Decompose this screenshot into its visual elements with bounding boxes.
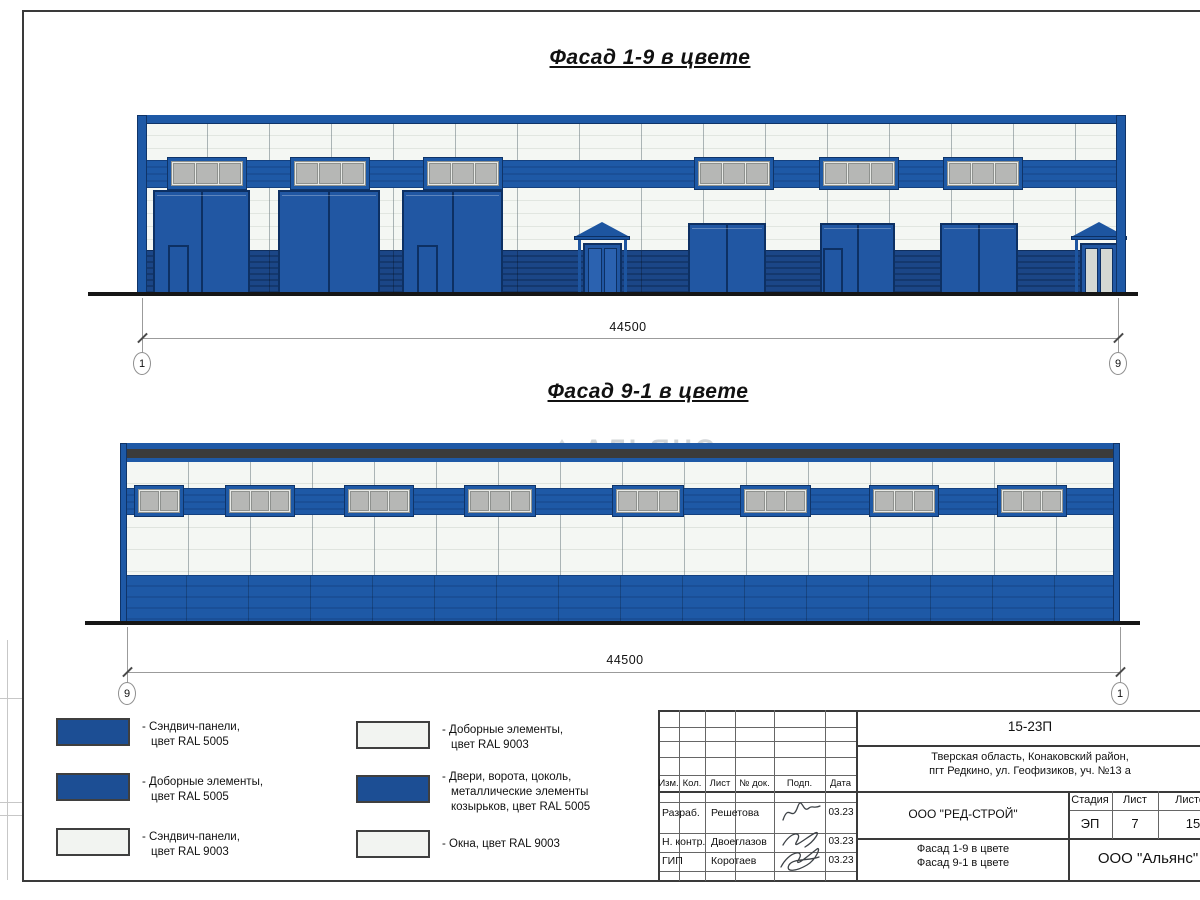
project-address-line1: Тверская область, Конаковский район, xyxy=(856,751,1200,763)
window xyxy=(612,485,684,517)
titleblock-line xyxy=(856,745,1200,747)
legend-swatch-white xyxy=(56,828,130,856)
stage-value: ЭП xyxy=(1068,816,1112,831)
col-header-list: Лист xyxy=(705,778,735,789)
canopy-post xyxy=(578,240,581,293)
dimension-value: 44500 xyxy=(609,320,646,334)
window xyxy=(134,485,184,517)
legend-swatch-blue xyxy=(56,718,130,746)
titleblock-line xyxy=(658,871,856,872)
legend-label: - Доборные элементы, цвет RAL 5005 xyxy=(142,775,263,805)
extension-line xyxy=(1118,298,1119,354)
entrance-door xyxy=(583,243,622,293)
sheet-title-line2: Фасад 9-1 в цвете xyxy=(858,857,1068,869)
titleblock-line xyxy=(658,833,856,834)
window xyxy=(943,157,1023,190)
frame-bottom-line xyxy=(22,880,1200,882)
titleblock-line xyxy=(658,710,660,881)
legend-label: - Двери, ворота, цоколь, металлические э… xyxy=(442,770,590,815)
titleblock-line xyxy=(658,710,1200,712)
legend-label: - Сэндвич-панели, цвет RAL 5005 xyxy=(142,720,240,750)
titleblock-line xyxy=(705,710,706,881)
project-address-line2: пгт Редкино, ул. Геофизиков, уч. №13 а xyxy=(856,765,1200,777)
dimension-line xyxy=(142,338,1118,339)
titleblock-line xyxy=(658,852,856,853)
extension-line xyxy=(127,627,128,683)
legend-text: - Доборные элементы, xyxy=(142,776,263,788)
sheets-total: 15 xyxy=(1158,816,1200,831)
window xyxy=(167,157,247,190)
facade-1-9-drawing xyxy=(137,115,1126,293)
blue-bottom-band xyxy=(125,575,1115,623)
entrance-door-glazed xyxy=(1080,243,1118,293)
role-gip: ГИП xyxy=(662,855,683,867)
door-wicket xyxy=(823,248,843,293)
margin-line xyxy=(0,802,22,803)
name-nkontr: Двоеглазов xyxy=(711,836,767,848)
roof-dark-band xyxy=(125,449,1115,458)
blue-trim-line xyxy=(125,458,1115,462)
legend-text: цвет RAL 9003 xyxy=(442,738,563,753)
facade-top-edge xyxy=(137,115,1126,124)
door xyxy=(688,223,766,293)
titleblock-line xyxy=(1068,810,1200,811)
sandwich-panel-wall xyxy=(127,462,1113,575)
developer-company: ООО "РЕД-СТРОЙ" xyxy=(858,807,1068,821)
legend-text: цвет RAL 9003 xyxy=(142,845,240,860)
sheet-label: Лист xyxy=(1112,794,1158,806)
frame-left-line xyxy=(22,10,24,882)
titleblock-line xyxy=(658,775,856,776)
window xyxy=(819,157,899,190)
window xyxy=(740,485,811,517)
signature xyxy=(778,796,822,828)
ground-line xyxy=(88,292,1138,296)
corner-pilaster xyxy=(137,115,147,293)
doc-number: 15-23П xyxy=(856,719,1200,734)
legend-text: - Двери, ворота, цоколь, xyxy=(442,771,571,783)
facade-9-1-title: Фасад 9-1 в цвете xyxy=(548,380,749,404)
window xyxy=(997,485,1067,517)
window xyxy=(344,485,414,517)
legend-text: козырьков, цвет RAL 5005 xyxy=(442,800,590,815)
window xyxy=(423,157,503,190)
window xyxy=(464,485,536,517)
gate-wicket-door xyxy=(417,245,438,293)
margin-line xyxy=(0,815,22,816)
sheet-number: 7 xyxy=(1112,816,1158,831)
titleblock-line xyxy=(658,757,856,758)
date-nkontr: 03.23 xyxy=(826,836,856,847)
window xyxy=(225,485,295,517)
legend-text: цвет RAL 5005 xyxy=(142,790,263,805)
date-gip: 03.23 xyxy=(826,855,856,866)
legend-swatch-white xyxy=(356,721,430,749)
ground-line xyxy=(85,621,1140,625)
col-header-data: Дата xyxy=(825,778,856,789)
dimension-line xyxy=(127,672,1120,673)
corner-pilaster xyxy=(1116,115,1126,293)
design-company: ООО "Альянс" xyxy=(1068,850,1200,867)
col-header-kol: Кол. xyxy=(679,778,705,789)
legend-label: - Сэндвич-панели, цвет RAL 9003 xyxy=(142,830,240,860)
corner-pilaster xyxy=(120,443,127,623)
role-razrab: Разраб. xyxy=(662,807,700,819)
legend-text: - Доборные элементы, xyxy=(442,724,563,736)
entrance-canopy xyxy=(576,222,628,236)
window xyxy=(290,157,370,190)
margin-line xyxy=(7,640,8,880)
legend-swatch-white xyxy=(356,830,430,858)
titleblock-line xyxy=(856,838,1200,840)
canopy-post xyxy=(624,240,627,293)
name-razrab: Решетова xyxy=(711,807,759,819)
name-gip: Коротаев xyxy=(711,855,756,867)
door xyxy=(940,223,1018,293)
sheets-label: Листов xyxy=(1158,794,1200,806)
facade-1-9-title: Фасад 1-9 в цвете xyxy=(550,46,751,70)
legend-text: металлические элементы xyxy=(442,785,590,800)
canopy-post xyxy=(1075,240,1078,293)
drawing-sheet: Фасад 1-9 в цвете xyxy=(0,0,1200,900)
stage-label: Стадия xyxy=(1068,794,1112,806)
legend-label: - Доборные элементы, цвет RAL 9003 xyxy=(442,723,563,753)
window xyxy=(694,157,774,190)
legend-swatch-blue xyxy=(356,775,430,803)
gate xyxy=(278,190,380,293)
titleblock-line xyxy=(658,791,1200,793)
titleblock-line xyxy=(658,802,856,803)
axis-marker-1: 1 xyxy=(133,352,151,375)
axis-marker-9: 9 xyxy=(118,682,136,705)
frame-top-line xyxy=(22,10,1200,12)
window xyxy=(869,485,939,517)
axis-marker-1: 1 xyxy=(1111,682,1129,705)
sheet-title-line1: Фасад 1-9 в цвете xyxy=(858,843,1068,855)
legend-text: - Окна, цвет RAL 9003 xyxy=(442,838,560,850)
legend-text: - Сэндвич-панели, xyxy=(142,721,240,733)
dimension-value: 44500 xyxy=(606,653,643,667)
col-header-podp: Подп. xyxy=(774,778,825,789)
margin-line xyxy=(0,698,22,699)
gate-wicket-door xyxy=(168,245,189,293)
col-header-izm: Изм. xyxy=(658,778,679,789)
entrance-canopy-bar xyxy=(574,236,630,240)
titleblock-line xyxy=(658,741,856,742)
titleblock-line xyxy=(658,727,856,728)
legend-text: - Сэндвич-панели, xyxy=(142,831,240,843)
legend-text: цвет RAL 5005 xyxy=(142,735,240,750)
facade-9-1-drawing xyxy=(120,443,1120,623)
legend-swatch-blue xyxy=(56,773,130,801)
titleblock-line xyxy=(856,710,858,881)
axis-marker-9: 9 xyxy=(1109,352,1127,375)
extension-line xyxy=(1120,627,1121,683)
signature xyxy=(775,827,823,877)
date-razrab: 03.23 xyxy=(826,807,856,818)
role-nkontr: Н. контр. xyxy=(662,836,705,848)
extension-line xyxy=(142,298,143,354)
legend-label: - Окна, цвет RAL 9003 xyxy=(442,837,560,852)
corner-pilaster xyxy=(1113,443,1120,623)
col-header-dok: № док. xyxy=(735,778,774,789)
